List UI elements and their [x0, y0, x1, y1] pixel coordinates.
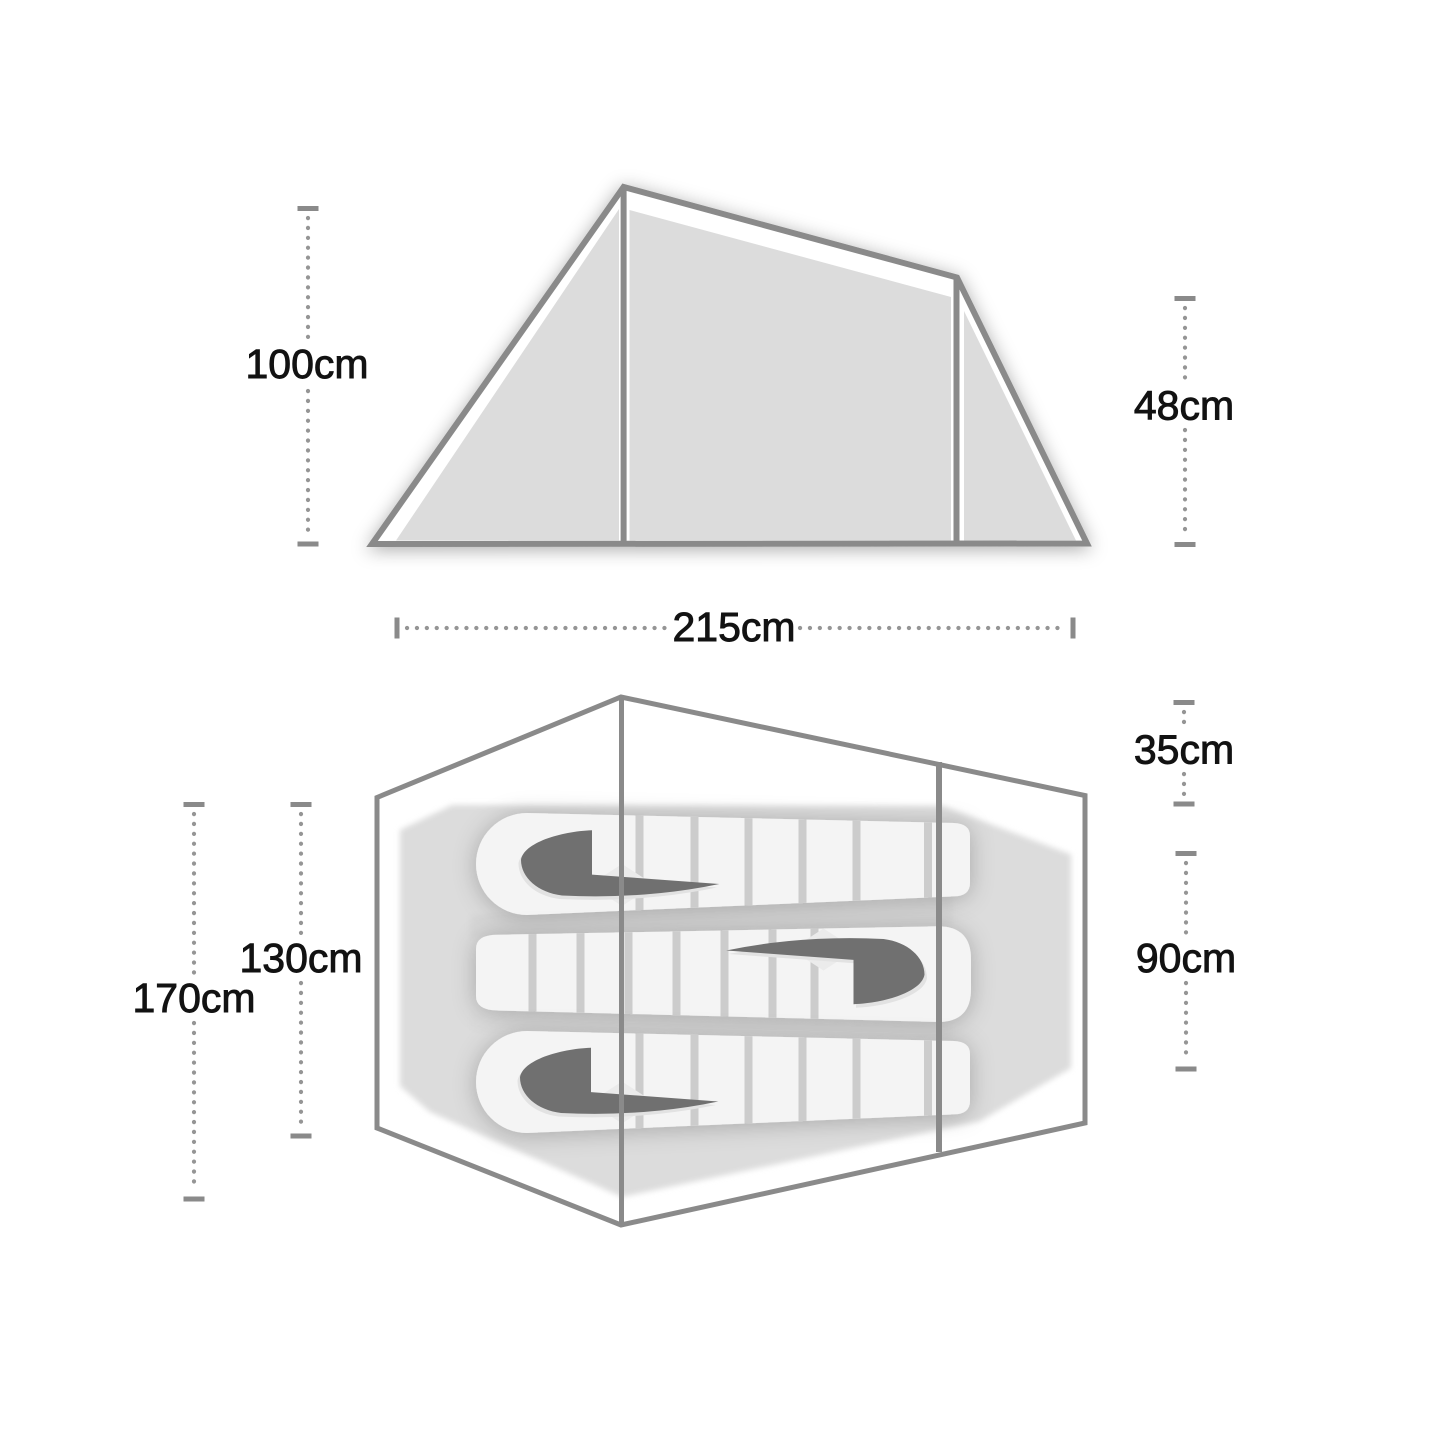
svg-text:48cm: 48cm — [1134, 383, 1234, 429]
svg-text:35cm: 35cm — [1134, 727, 1234, 773]
svg-text:130cm: 130cm — [239, 935, 362, 981]
svg-text:215cm: 215cm — [672, 604, 795, 650]
svg-text:170cm: 170cm — [132, 975, 255, 1021]
svg-text:90cm: 90cm — [1136, 935, 1236, 981]
svg-text:100cm: 100cm — [245, 341, 368, 387]
